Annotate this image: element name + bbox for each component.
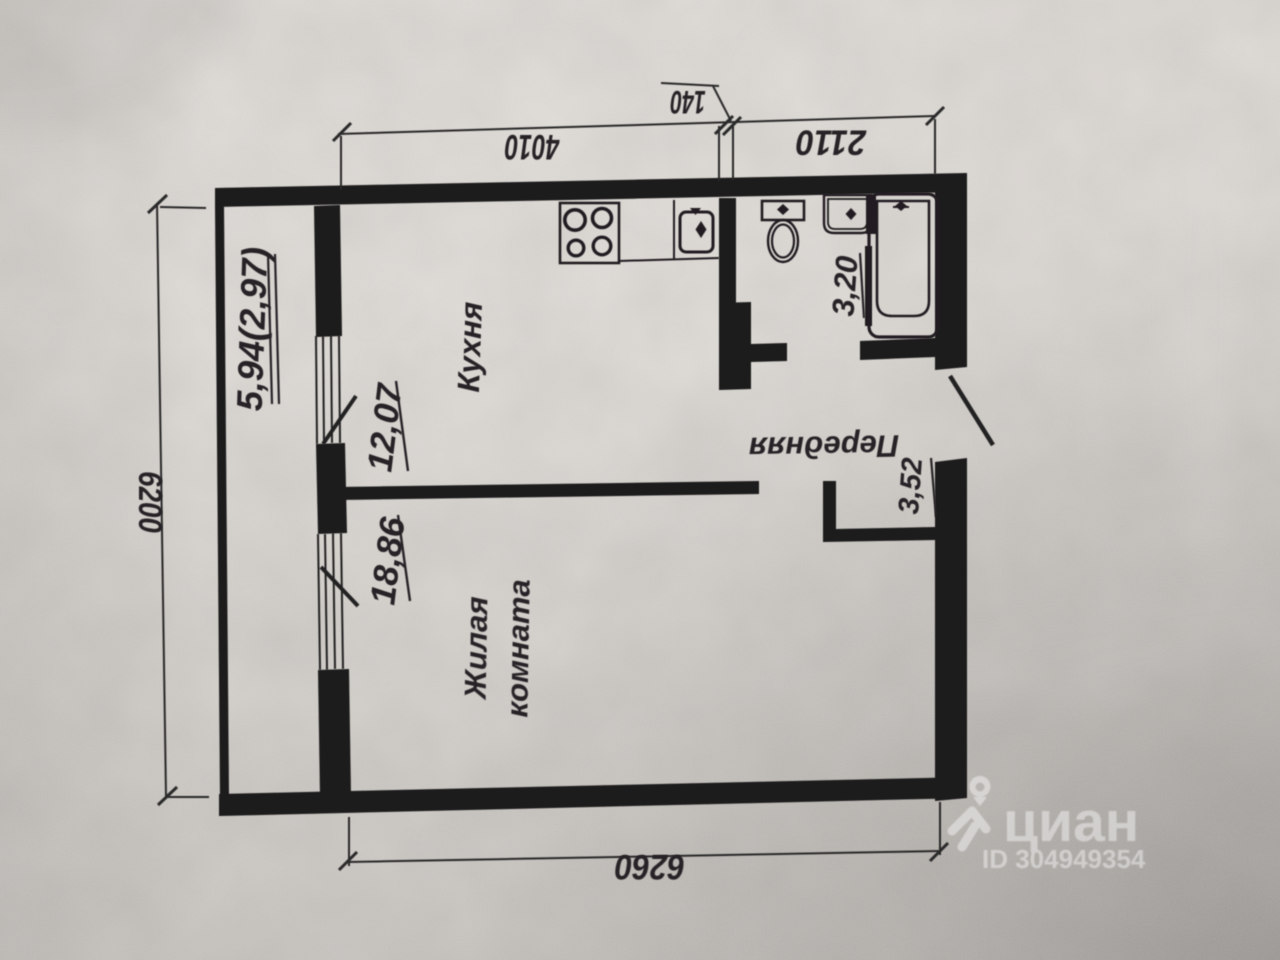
svg-text:6260: 6260 [615,847,686,886]
svg-text:6200: 6200 [132,471,169,533]
svg-text:Жилая: Жилая [458,596,495,701]
svg-text:3,52: 3,52 [893,457,929,516]
svg-text:2110: 2110 [796,122,867,161]
svg-text:ID 304949354: ID 304949354 [982,844,1146,874]
svg-text:3,20: 3,20 [825,255,864,318]
svg-text:140: 140 [670,84,705,121]
svg-text:комната: комната [499,579,536,718]
svg-text:Передняя: Передняя [748,428,899,466]
svg-text:Кухня: Кухня [451,301,489,393]
svg-text:4010: 4010 [505,127,560,165]
